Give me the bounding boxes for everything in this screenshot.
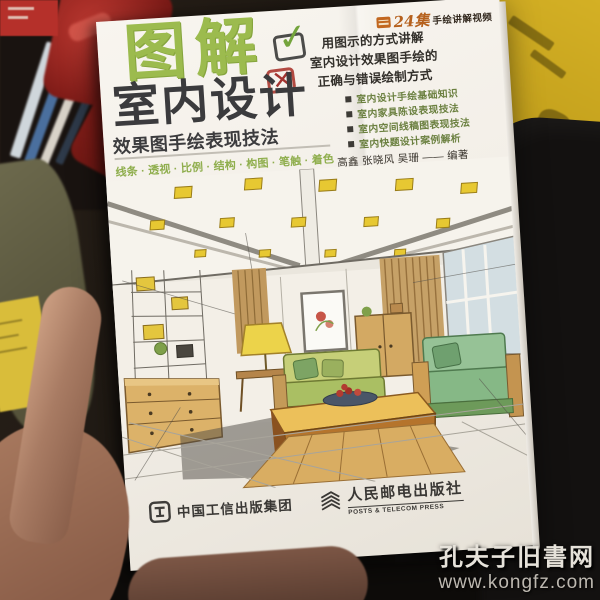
book-cover: 图解 ✓ ✕ 室内设计 效果图手绘表现技法 线条 · 透视 · 比例 · 结构 … (96, 0, 534, 571)
bullet-square-icon (346, 111, 352, 117)
watermark-site-name: 孔夫子旧書网 (438, 537, 595, 572)
photo-of-book: 图解 ✓ ✕ 室内设计 效果图手绘表现技法 线条 · 透视 · 比例 · 结构 … (0, 0, 600, 600)
badge-label: 手绘讲解视频 (432, 9, 493, 27)
watermark: 孔夫子旧書网 www.kongfz.com (438, 537, 595, 594)
bullet-square-icon (345, 96, 351, 102)
citic-press-logo-icon (148, 500, 171, 523)
red-label (0, 0, 58, 36)
publisher-left-name: 中国工信出版集团 (176, 494, 293, 521)
main-title: 室内设计 (111, 71, 310, 130)
wall-art (301, 291, 347, 352)
watermark-site-url: www.kongfz.com (438, 572, 595, 594)
cover-illustration (106, 156, 529, 497)
ptpress-logo-icon (318, 488, 343, 513)
checkbox-correct: ✓ (272, 32, 307, 62)
pitch-text: 用图示的方式讲解 室内设计效果图手绘的 正确与错误绘制方式 (305, 27, 442, 92)
bullet-square-icon (348, 141, 354, 147)
bullet-square-icon (347, 126, 353, 132)
publisher-left: 中国工信出版集团 (148, 493, 293, 524)
feature-list: 室内设计手绘基础知识 室内家具陈设表现技法 室内空间线稿图表现技法 室内快题设计… (345, 84, 472, 152)
video-icon (376, 17, 391, 29)
